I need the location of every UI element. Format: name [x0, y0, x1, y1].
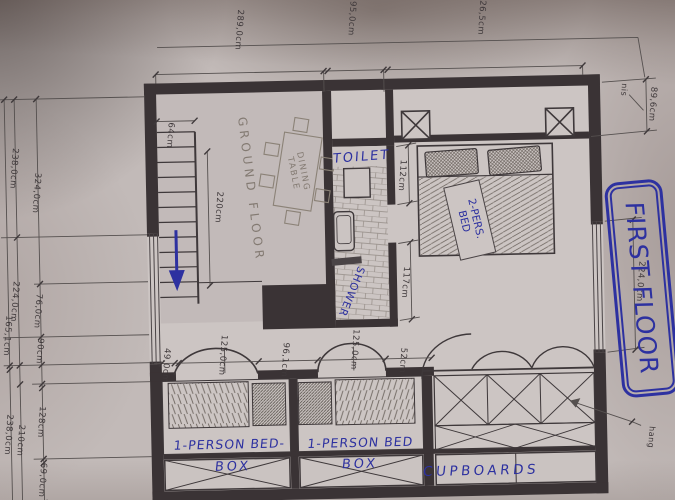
floorplan-drawing: 289,0cm 95,0cm 326,5cm 89,6cm 224,0cm ni…: [0, 0, 675, 500]
bed-box-1-label: 1-PERSON BED-: [173, 435, 286, 452]
dimension-label: 52cm: [397, 347, 409, 373]
bathroom: [329, 146, 390, 320]
dimension-label: 112cm: [396, 159, 408, 191]
pillow: [425, 148, 479, 177]
niche-annotation: nis: [619, 83, 629, 97]
dimension-label: 90cm: [34, 338, 46, 364]
floorplan-linework: [0, 0, 675, 500]
pillow: [488, 146, 542, 176]
hang-annotation: hang: [646, 426, 656, 449]
dimension-label: 210cm: [14, 424, 26, 456]
dimension-label: 220cm: [212, 191, 224, 223]
toilet-fixture: [344, 168, 371, 198]
dimension-label: 117cm: [399, 266, 411, 298]
floorplan-photo: 289,0cm 95,0cm 326,5cm 89,6cm 224,0cm ni…: [0, 0, 675, 500]
dimension-label: 128cm: [35, 406, 47, 438]
cupboards-label: CUPBOARDS: [422, 462, 540, 480]
bed-box-2-label: 1-PERSON BED: [307, 434, 414, 451]
bed-box-2-label: BOX: [341, 456, 379, 472]
bed-box-1-label: BOX: [214, 459, 252, 475]
dimension-label: 64cm: [164, 122, 176, 148]
